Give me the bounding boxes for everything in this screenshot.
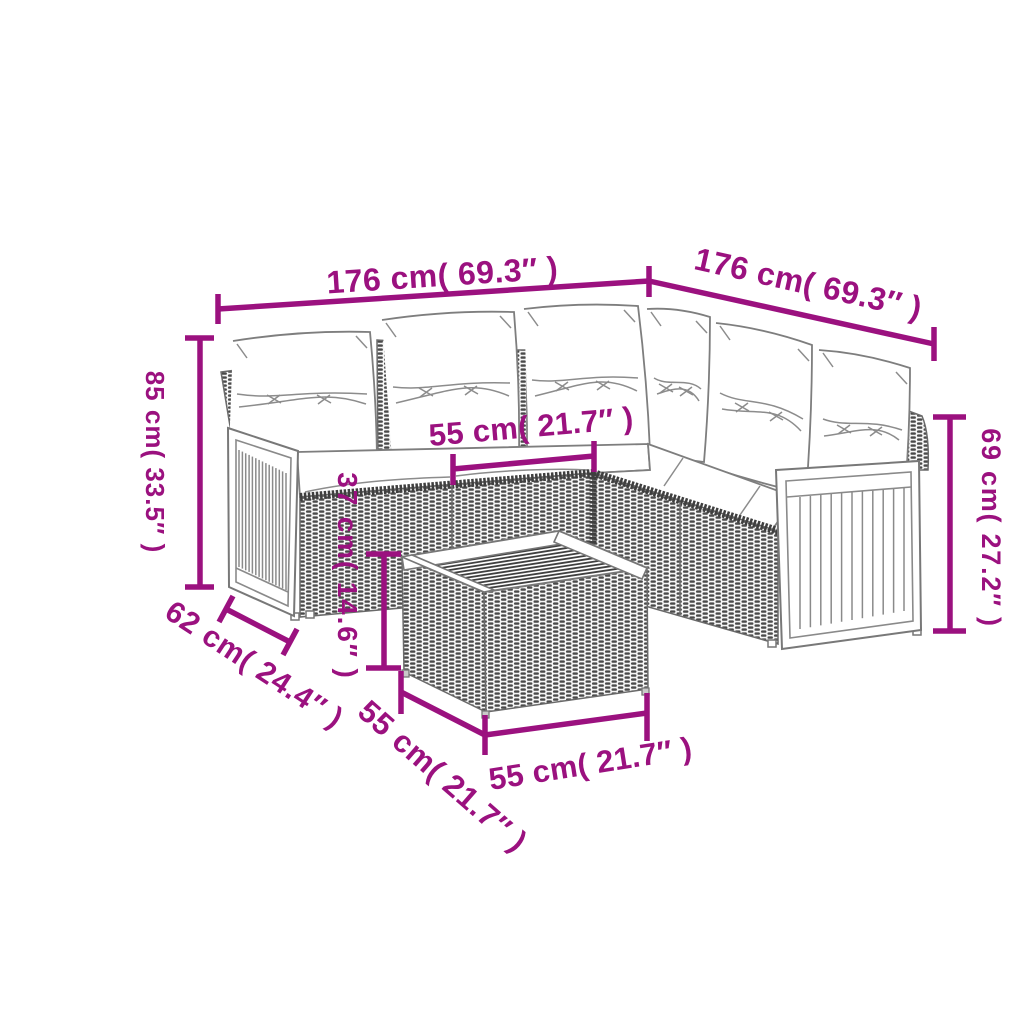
svg-text:37 cm( 14.6″ ): 37 cm( 14.6″ ) bbox=[332, 472, 363, 679]
svg-text:85 cm( 33.5″ ): 85 cm( 33.5″ ) bbox=[140, 371, 170, 554]
svg-text:69 cm( 27.2″ ): 69 cm( 27.2″ ) bbox=[976, 428, 1006, 628]
